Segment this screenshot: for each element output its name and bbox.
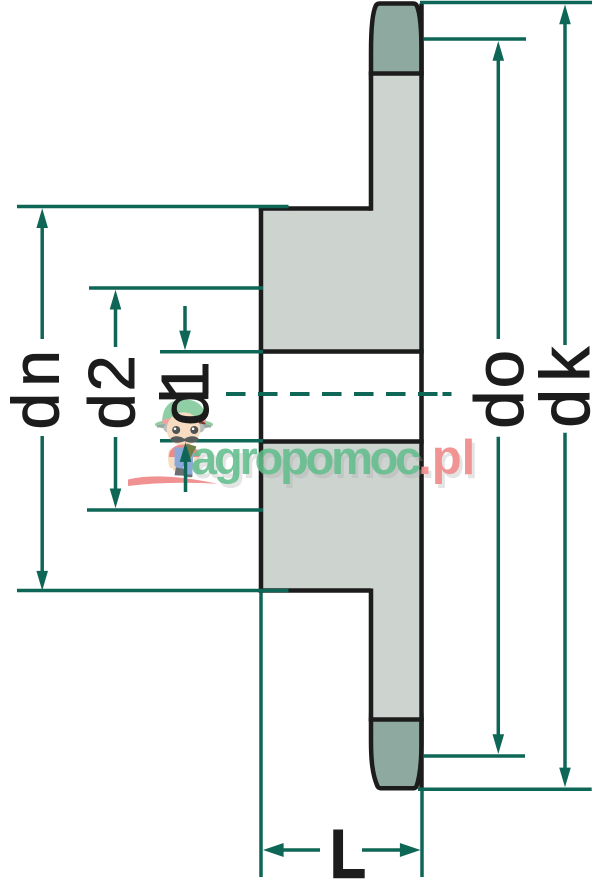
svg-text:d2: d2: [75, 353, 148, 429]
svg-text:L: L: [330, 815, 366, 889]
svg-text:dk: dk: [526, 340, 600, 428]
svg-text:d1: d1: [148, 364, 223, 425]
svg-text:dn: dn: [0, 344, 73, 429]
svg-text:agropomoc.pl: agropomoc.pl: [191, 431, 475, 485]
